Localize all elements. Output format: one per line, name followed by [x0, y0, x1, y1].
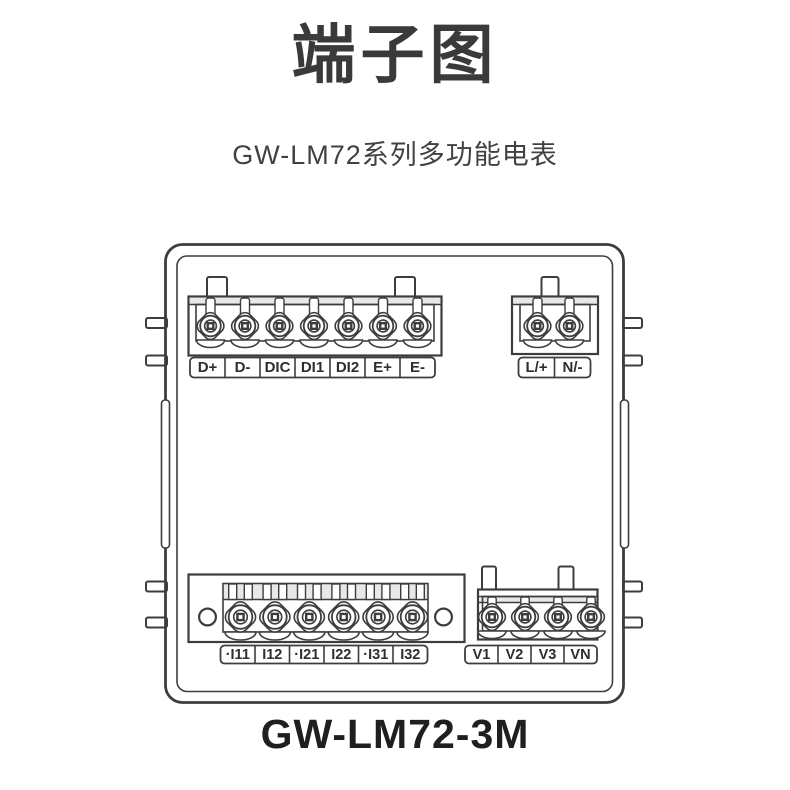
connector-latch-tab: [542, 277, 559, 298]
terminal-label: V1: [473, 647, 491, 663]
mounting-clip-tab: [146, 582, 167, 592]
terminal-label: D-: [235, 359, 251, 376]
mounting-hole: [435, 609, 452, 626]
terminal-label: ·I21: [294, 647, 319, 663]
connector-latch-tab: [207, 277, 227, 298]
connector-latch-tab: [395, 277, 415, 298]
terminal-label: I32: [400, 647, 420, 663]
housing-strip: [224, 585, 427, 600]
page: 端子图 GW-LM72系列多功能电表: [0, 0, 790, 790]
terminal-label: VN: [570, 647, 590, 663]
mounting-clip-tab: [623, 356, 642, 366]
connector-latch-tab: [559, 567, 574, 591]
mounting-clip-tab: [146, 318, 167, 328]
terminal-label: I22: [331, 647, 351, 663]
terminal-diagram-figure: D+ D- DIC DI1 DI2 E+ E- L/+ N/-: [0, 0, 790, 790]
model-label: GW-LM72-3M: [0, 711, 790, 758]
terminal-label: E+: [373, 359, 392, 376]
terminal-label: V3: [539, 647, 557, 663]
mounting-clip-tab: [623, 618, 642, 628]
current-terminal-block: ·I11 I12 ·I21 I22 ·I31 I32: [189, 575, 465, 664]
terminal-label: DI2: [336, 359, 359, 376]
terminal-label: V2: [506, 647, 524, 663]
terminal-label: I12: [262, 647, 282, 663]
aux-power-terminal-block: L/+ N/-: [512, 277, 598, 378]
terminal-label: N/-: [563, 359, 583, 376]
terminal-label: DIC: [265, 359, 291, 376]
mounting-clip-tab: [623, 318, 642, 328]
mounting-clip-tab: [623, 582, 642, 592]
terminal-label: L/+: [525, 359, 547, 376]
terminal-label: DI1: [301, 359, 324, 376]
mounting-hole: [199, 609, 216, 626]
terminal-label: ·I11: [226, 647, 250, 663]
voltage-terminal-block: V1 V2 V3 VN: [465, 567, 607, 664]
mounting-clip-tab: [146, 618, 167, 628]
terminal-label: ·I31: [363, 647, 388, 663]
connector-latch-tab: [482, 567, 496, 591]
mounting-clip-slider: [621, 400, 629, 548]
mounting-clip-slider: [162, 400, 170, 548]
terminal-label: D+: [198, 359, 218, 376]
terminal-label: E-: [410, 359, 425, 376]
mounting-clip-tab: [146, 356, 167, 366]
housing-strip: [514, 298, 597, 305]
comm-io-terminal-block: D+ D- DIC DI1 DI2 E+ E-: [189, 277, 442, 378]
